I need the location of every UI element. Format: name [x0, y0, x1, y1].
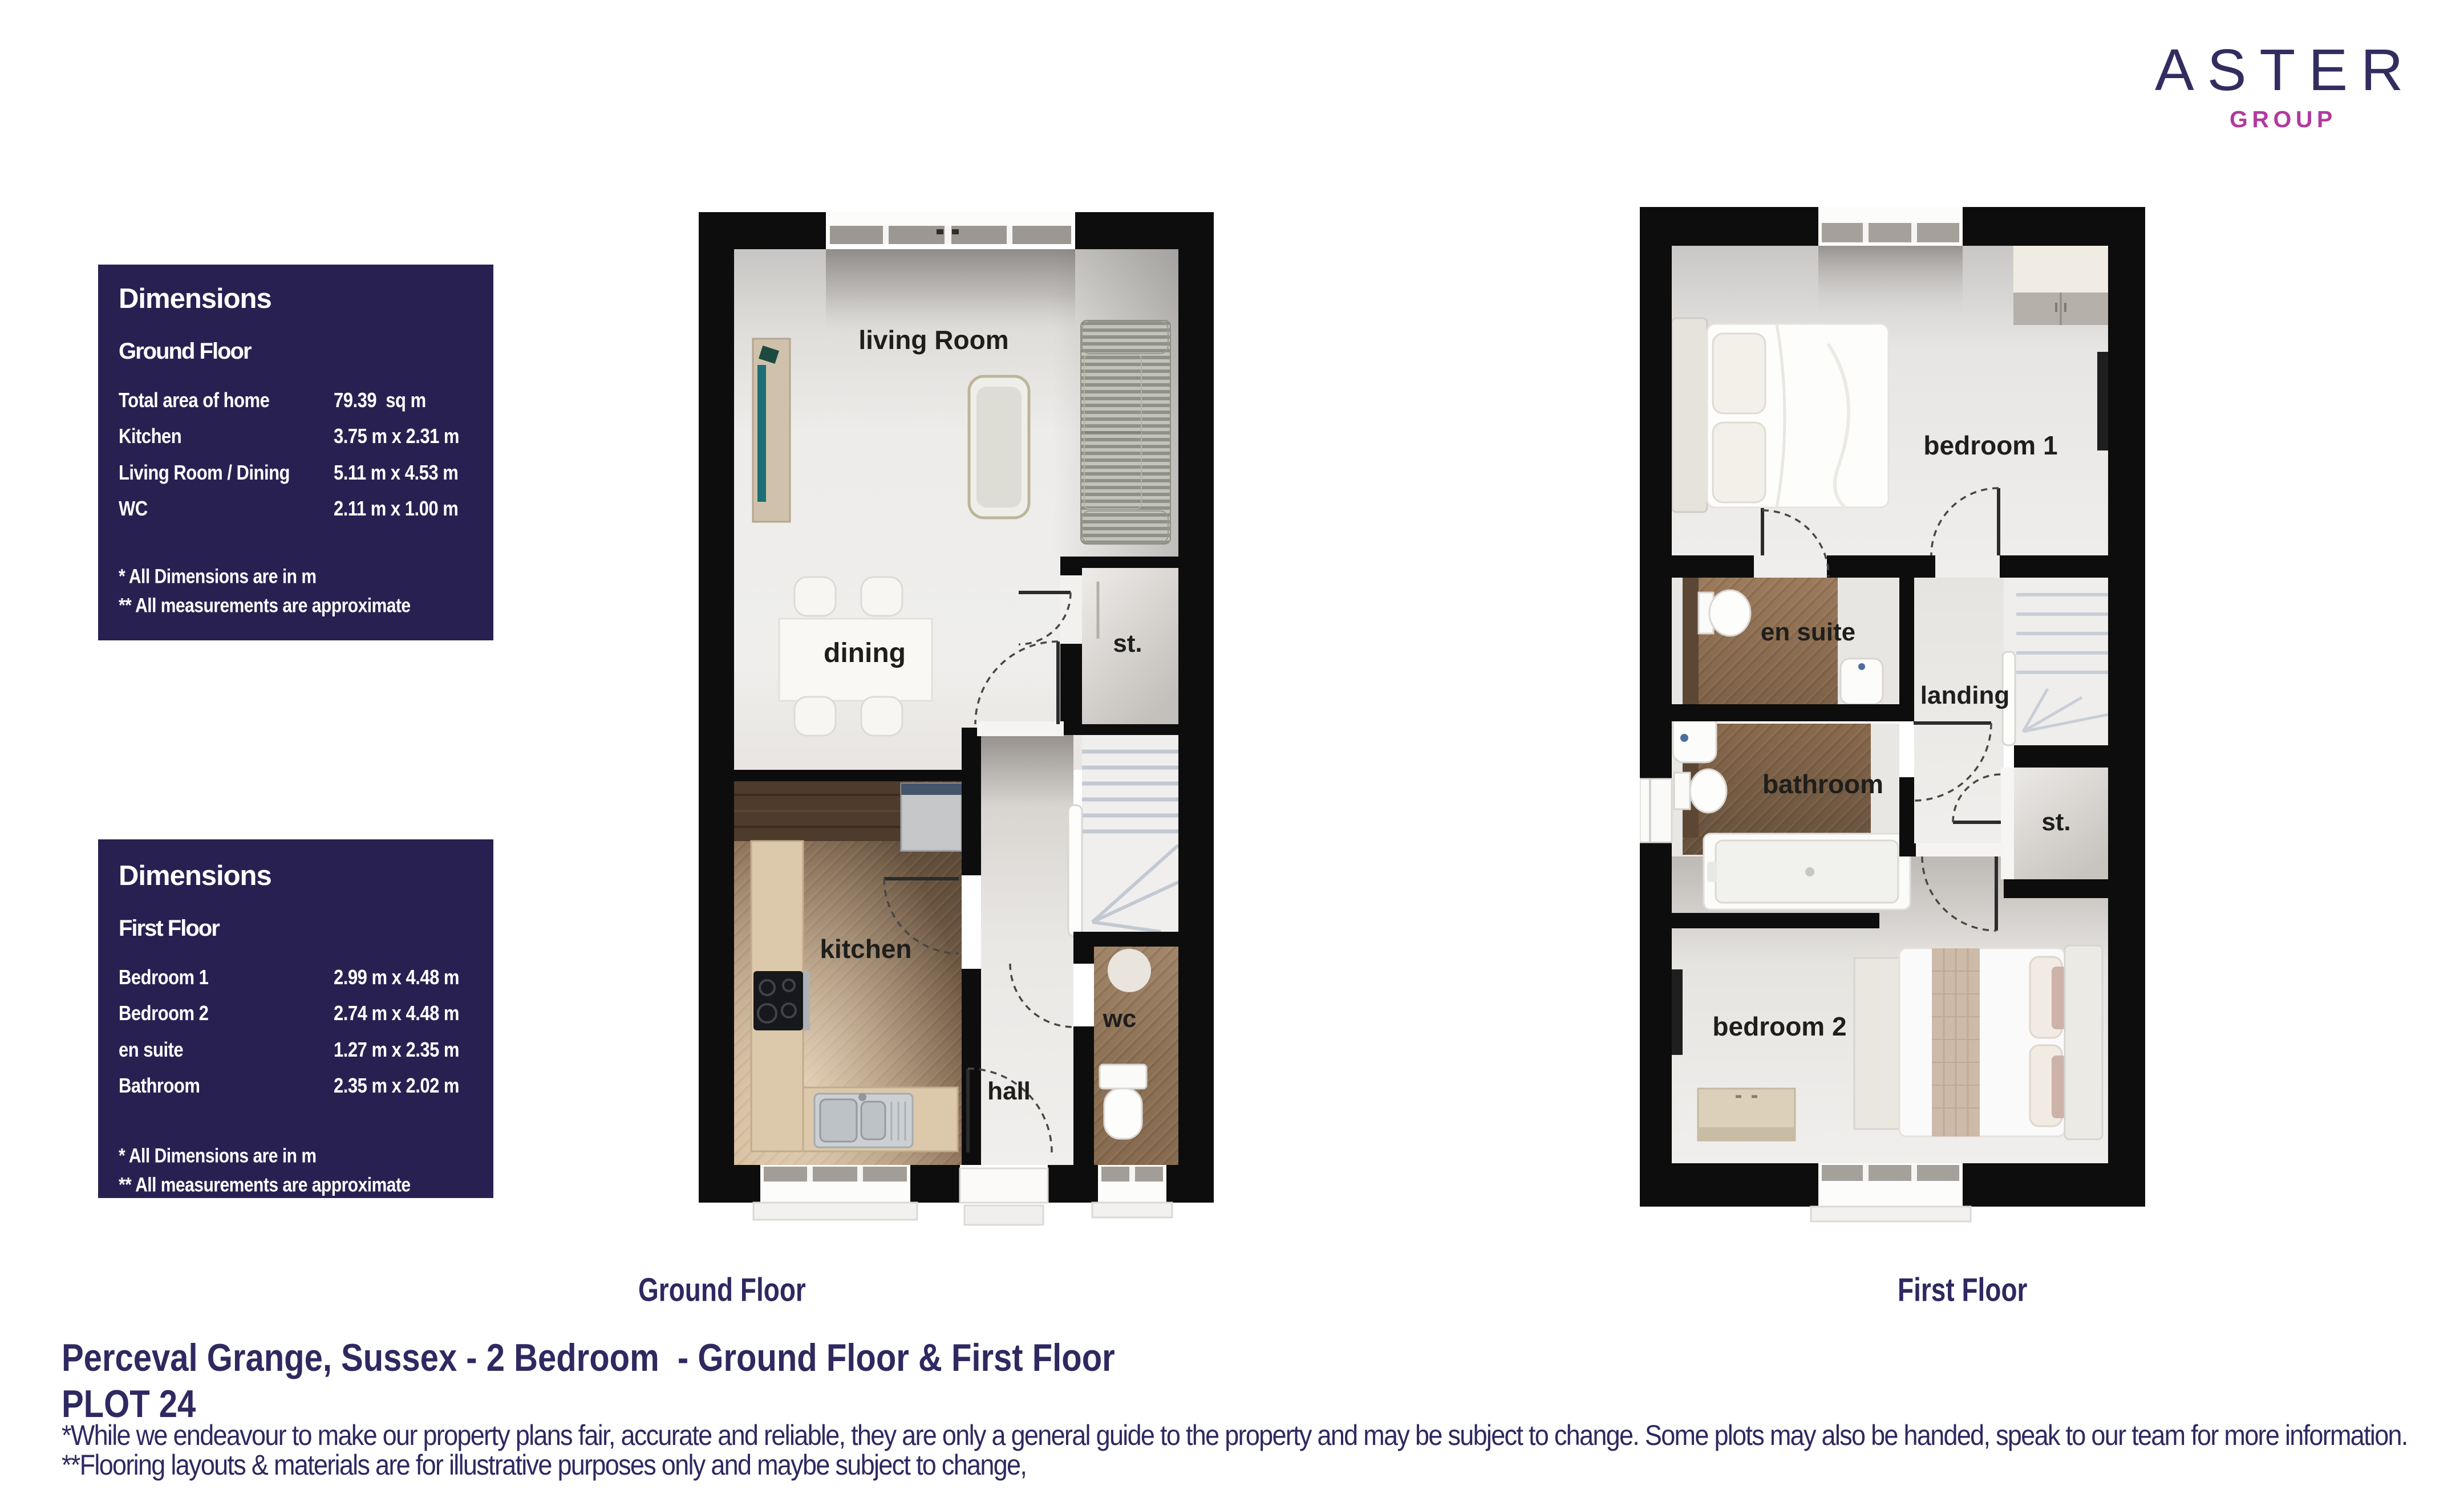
svg-text:st.: st. — [1113, 630, 1142, 657]
svg-text:kitchen: kitchen — [820, 934, 911, 964]
svg-text:bathroom: bathroom — [1762, 769, 1883, 799]
svg-text:wc: wc — [1103, 1005, 1137, 1033]
svg-text:bedroom 2: bedroom 2 — [1712, 1012, 1846, 1041]
svg-text:dining: dining — [824, 638, 906, 668]
svg-text:hall: hall — [987, 1077, 1031, 1105]
svg-text:living Room: living Room — [858, 325, 1008, 355]
svg-text:st.: st. — [2041, 808, 2070, 836]
svg-text:bedroom 1: bedroom 1 — [1923, 431, 2057, 460]
svg-text:landing: landing — [1920, 681, 2009, 709]
svg-text:en suite: en suite — [1761, 618, 1855, 646]
